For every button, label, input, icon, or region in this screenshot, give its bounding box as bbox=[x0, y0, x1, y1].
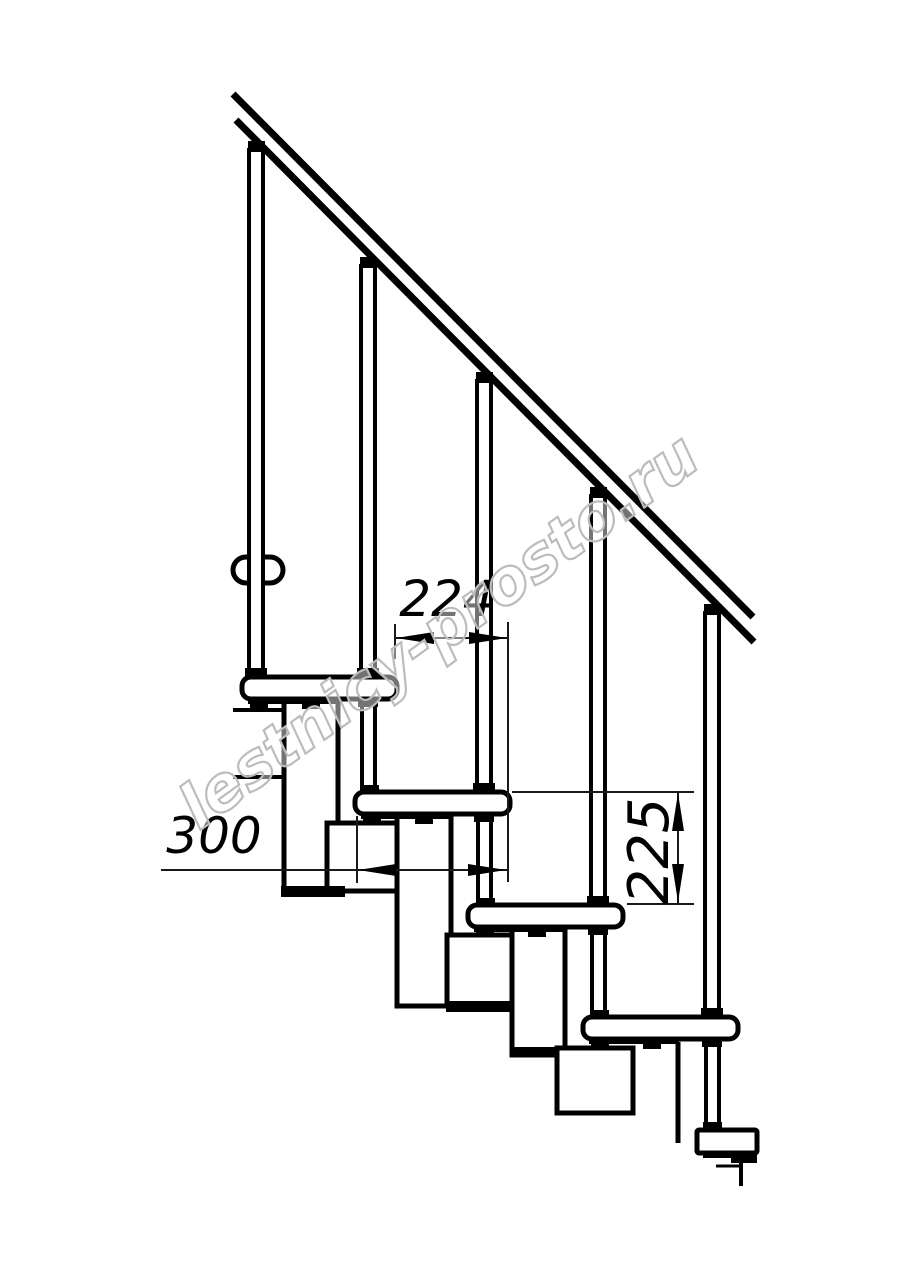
mount-strip bbox=[703, 1151, 733, 1158]
rod-nub bbox=[588, 927, 608, 935]
mount-nub bbox=[591, 1043, 609, 1049]
rod-nub bbox=[702, 1039, 722, 1047]
mount-nub bbox=[363, 818, 381, 824]
collar bbox=[587, 896, 609, 906]
rail-fitting bbox=[248, 141, 265, 152]
rod bbox=[478, 815, 491, 907]
tread-3 bbox=[468, 905, 623, 927]
rod-collar bbox=[590, 1010, 609, 1018]
rod-nub bbox=[474, 814, 494, 822]
module-clamp-2 bbox=[446, 1001, 510, 1012]
module-tube-3 bbox=[512, 929, 565, 1055]
dim-label-rise: 225 bbox=[617, 798, 682, 905]
staircase-drawing: 224 300 225 lestnicy-prosto.ru bbox=[0, 0, 914, 1280]
mount-nub bbox=[250, 703, 268, 709]
mount-block bbox=[731, 1151, 757, 1163]
rod-collar bbox=[476, 898, 495, 906]
collar bbox=[701, 1008, 723, 1018]
baluster-5 bbox=[705, 613, 719, 1020]
rail-fitting bbox=[360, 257, 377, 268]
module-coupler-3 bbox=[557, 1048, 633, 1113]
bottom-fragments bbox=[716, 1163, 741, 1186]
technical-drawing-canvas: 224 300 225 lestnicy-prosto.ru bbox=[0, 0, 914, 1280]
tread-2 bbox=[355, 792, 510, 814]
mount-nub bbox=[643, 1043, 661, 1049]
mount-nub bbox=[415, 818, 433, 824]
rod bbox=[592, 928, 605, 1019]
rod bbox=[706, 1040, 719, 1132]
tread-5-partial bbox=[697, 1130, 757, 1153]
baluster-1 bbox=[249, 150, 263, 680]
tread-4 bbox=[583, 1017, 738, 1039]
collar bbox=[245, 668, 267, 678]
collar bbox=[473, 783, 495, 793]
baluster-2 bbox=[361, 266, 375, 680]
mount-nub bbox=[528, 931, 546, 937]
rod-collar bbox=[703, 1122, 722, 1131]
module-clamp-1 bbox=[281, 886, 345, 897]
rail-fitting bbox=[476, 372, 493, 383]
module-coupler-2 bbox=[447, 935, 518, 1005]
rail-fitting bbox=[704, 604, 721, 615]
mount-nub bbox=[476, 931, 494, 937]
module-tube-2 bbox=[397, 816, 451, 1006]
rod-collar bbox=[360, 785, 379, 793]
module-coupler-1 bbox=[327, 823, 405, 891]
watermark-text: lestnicy-prosto.ru bbox=[165, 418, 712, 843]
